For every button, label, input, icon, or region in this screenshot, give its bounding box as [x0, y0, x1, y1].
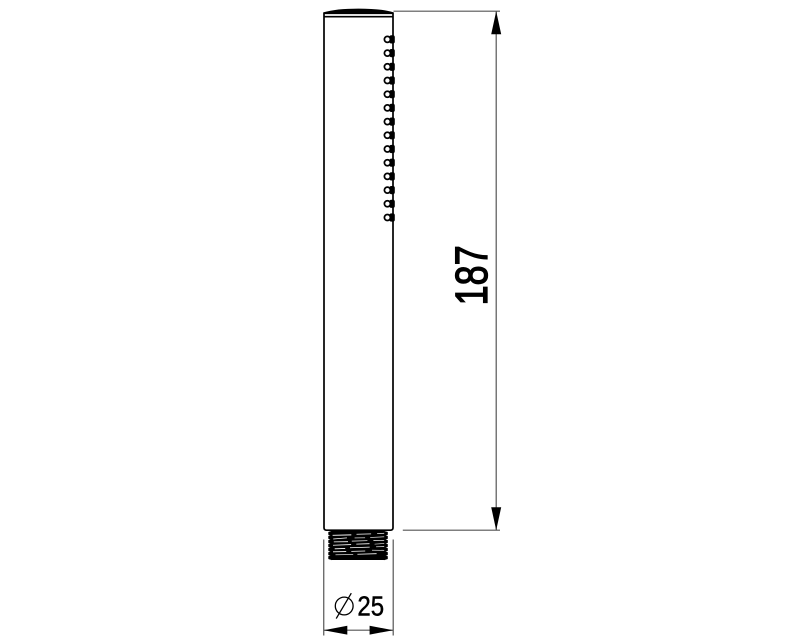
svg-text:25: 25 [357, 592, 384, 622]
svg-text:187: 187 [446, 245, 497, 305]
